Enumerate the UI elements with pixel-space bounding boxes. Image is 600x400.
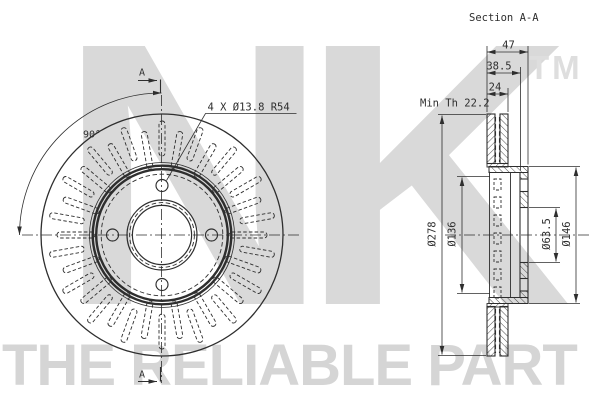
dim-overall-width: 47 [502,40,515,52]
section-view: Section A-A [420,12,592,356]
section-title: Section A-A [469,12,539,24]
vent-slot [80,276,113,305]
front-view: 90° 4 X Ø13.8 R54 A A [20,68,303,384]
vent-slot [211,165,244,194]
cut-marker-top: A [138,68,161,94]
dim-hat-outer-diameter: Ø146 [561,221,573,246]
dim-outer-diameter: Ø278 [427,221,439,246]
vent-slot [224,255,262,274]
cut-marker-top-label: A [139,68,145,79]
dim-center-bore: Ø63.5 [541,218,553,250]
vent-slot [120,127,138,162]
rotor-top-inboard-plate [500,114,508,164]
angle-label: 90° [83,130,101,141]
dim-friction-inner-diameter: Ø136 [447,221,459,246]
hidden-vent-channel [494,269,501,280]
hidden-vent-channel [494,179,501,190]
vent-slot [49,246,85,258]
vent-slot [159,121,165,156]
hidden-vent-channel [494,287,501,298]
mount-plate-segment [520,173,528,180]
vent-slot [186,308,204,343]
vent-slot [224,196,262,215]
rotor-top-outboard-plate [487,114,495,164]
cut-marker-bottom: A [138,367,161,382]
vent-slot [211,276,244,305]
vent-slot [239,212,275,224]
vent-slot [120,308,138,343]
hidden-vent-channel [494,251,501,262]
rotor-bottom-outboard-plate [487,307,495,357]
vent-slot [193,143,217,179]
bolt-hole [156,279,168,291]
vent-slot [49,212,85,224]
vent-slot [229,175,262,198]
vent-slot [62,175,95,198]
vent-slot [80,165,113,194]
hidden-vent-channel [494,215,501,226]
vent-slot [62,196,100,215]
hat-drum-bottom [489,298,528,304]
vent-slot [159,314,165,349]
cut-marker-bottom-label: A [139,370,145,381]
vent-slot [62,255,100,274]
hidden-vent-channels [494,179,501,298]
dim-hat-depth: 38.5 [486,61,511,73]
bolt-hole [156,180,168,192]
vent-slot [239,246,275,258]
hat-drum-top [489,167,528,173]
mount-plate-segment [520,192,528,208]
dim-rotor-thickness: 24 [489,82,502,94]
vent-slot [107,292,131,328]
min-thickness-note: Min Th 22.2 [420,98,490,110]
drawing-canvas: NK TM THE RELIABLE PART [0,0,600,400]
mount-plate-segment [520,263,528,279]
angle-dimension-arc [20,93,162,235]
vent-slot [229,272,262,295]
rotor-bottom-inboard-plate [500,307,508,357]
vent-slot [62,272,95,295]
bolt-note: 4 X Ø13.8 R54 [208,102,290,114]
mount-plate-segment [520,291,528,298]
technical-drawing: 90° 4 X Ø13.8 R54 A A Section A-A [0,0,600,400]
hidden-vent-channel [494,197,501,208]
